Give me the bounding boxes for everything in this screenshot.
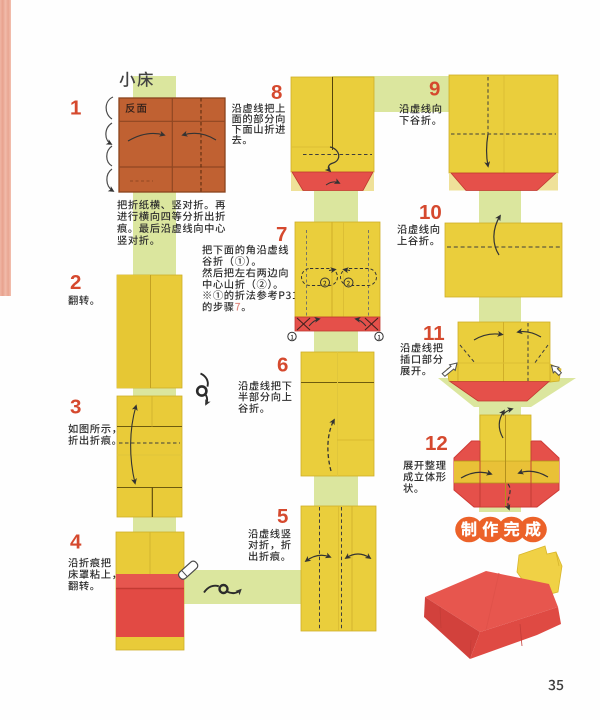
svg-text:反面: 反面 <box>125 101 148 116</box>
svg-text:9: 9 <box>429 78 440 101</box>
svg-text:35: 35 <box>548 675 564 695</box>
svg-text:上谷折。: 上谷折。 <box>397 233 441 248</box>
svg-text:12: 12 <box>425 432 448 455</box>
svg-text:折出折痕。: 折出折痕。 <box>68 432 122 447</box>
svg-text:出折痕。: 出折痕。 <box>248 548 292 563</box>
svg-text:2: 2 <box>347 278 351 288</box>
svg-text:翻转。: 翻转。 <box>68 292 101 307</box>
svg-text:6: 6 <box>277 354 288 377</box>
svg-text:的步骤7。: 的步骤7。 <box>202 299 252 314</box>
svg-text:翻转。: 翻转。 <box>68 577 101 592</box>
svg-text:制作完成: 制作完成 <box>461 516 546 540</box>
svg-text:2: 2 <box>323 278 327 288</box>
svg-text:1: 1 <box>70 97 81 120</box>
svg-text:展开。: 展开。 <box>400 363 433 378</box>
svg-text:竖对折。: 竖对折。 <box>117 232 161 247</box>
svg-text:下谷折。: 下谷折。 <box>399 112 443 127</box>
svg-text:1: 1 <box>290 332 294 342</box>
svg-text:3: 3 <box>70 396 81 419</box>
svg-text:1: 1 <box>377 332 381 342</box>
svg-text:4: 4 <box>70 531 82 554</box>
svg-text:2: 2 <box>70 271 81 294</box>
svg-text:小床: 小床 <box>119 67 155 91</box>
svg-text:状。: 状。 <box>403 480 425 495</box>
svg-text:去。: 去。 <box>232 131 254 146</box>
svg-text:谷折。: 谷折。 <box>238 400 271 415</box>
